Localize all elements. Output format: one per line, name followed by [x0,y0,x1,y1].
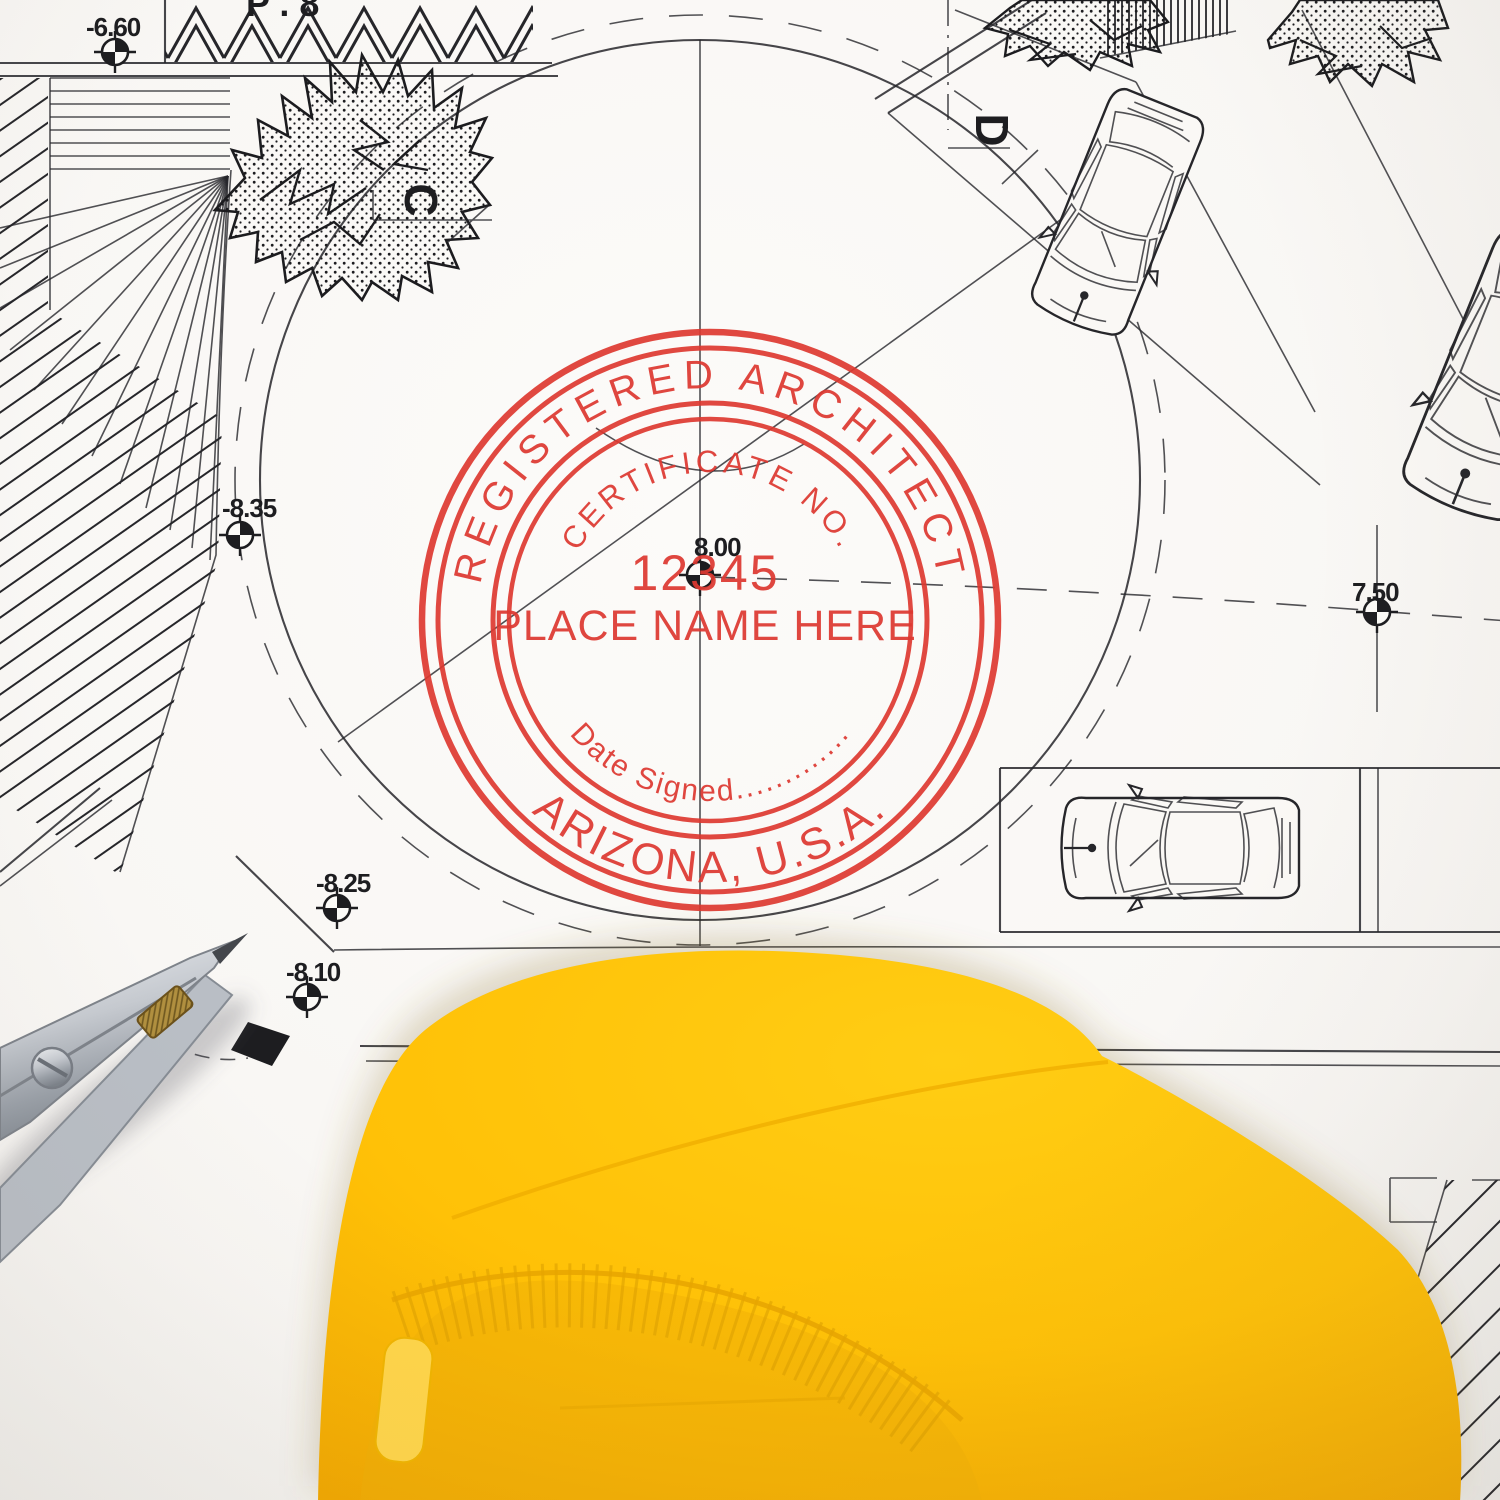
svg-text:-6.60: -6.60 [86,12,141,42]
stamp-certificate-number: 12345 [630,545,779,601]
svg-text:7.50: 7.50 [1352,577,1399,607]
blueprint-photo: C D P . 8 -6.60 -8.35 8.00 7.50 -8.25 [0,0,1500,1500]
photo-scene: C D P . 8 -6.60 -8.35 8.00 7.50 -8.25 [0,0,1500,1500]
section-label-c: C [395,183,447,216]
svg-text:-8.35: -8.35 [222,493,277,523]
svg-text:-8.25: -8.25 [316,868,371,898]
sheet-edge-label: P . 8 [246,0,319,24]
parked-car-bottom [1062,785,1300,911]
stamp-name-placeholder: PLACE NAME HERE [493,602,917,650]
svg-text:-8.10: -8.10 [286,957,341,987]
section-label-d: D [966,113,1018,146]
architect-stamp: REGISTERED ARCHITECT CERTIFICATE NO. ARI… [422,332,998,908]
